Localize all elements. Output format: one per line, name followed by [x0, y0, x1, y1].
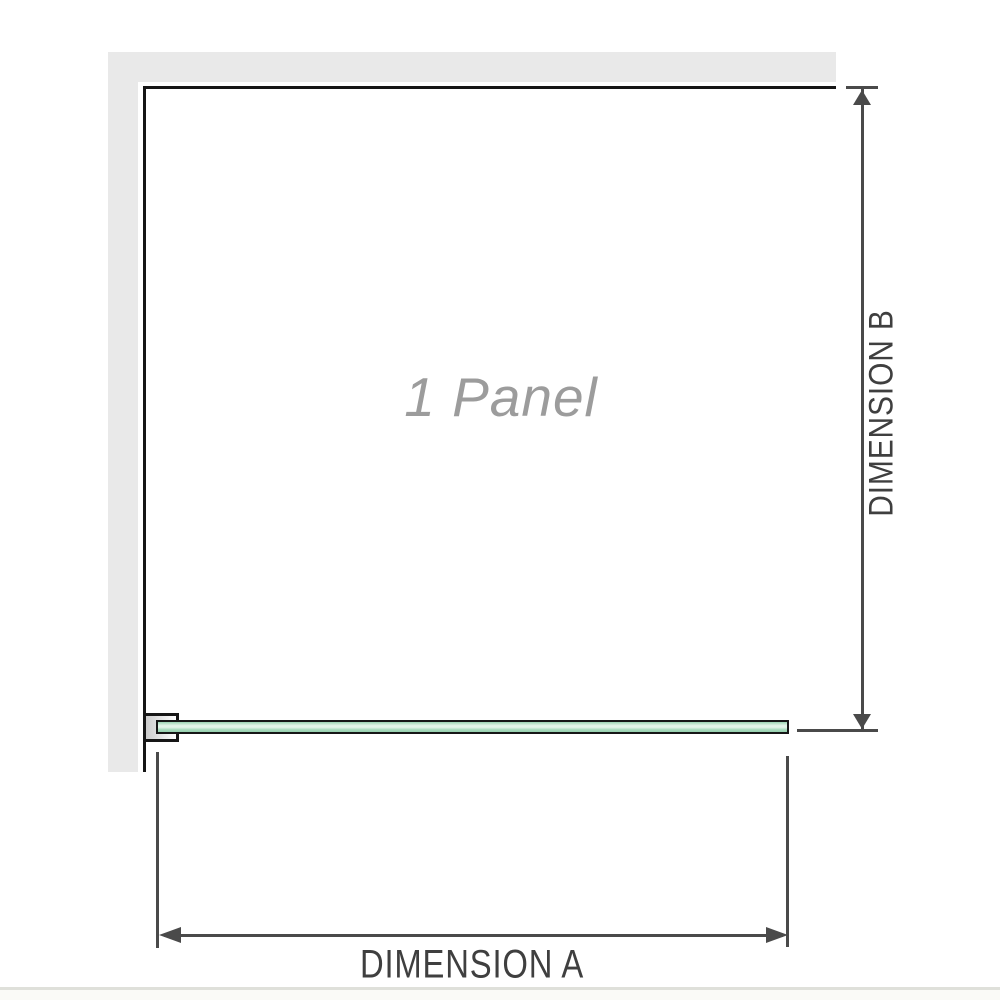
- arrow-left-icon: [159, 927, 181, 943]
- glass-panel: [156, 720, 789, 734]
- dimension-a-label: DIMENSION A: [360, 943, 584, 988]
- arrow-up-icon: [853, 90, 871, 105]
- dimension-b-label: DIMENSION B: [863, 309, 902, 517]
- dimension-b-top-tick: [846, 86, 878, 89]
- dimension-a-left-extension: [156, 752, 159, 948]
- arrow-right-icon: [766, 927, 788, 943]
- panel-count-caption: 1 Panel: [404, 365, 598, 429]
- wall-top-strip: [108, 52, 836, 82]
- wall-left-strip: [108, 52, 138, 772]
- bottom-edge-band: [0, 990, 1000, 1000]
- dimension-a-line: [164, 934, 783, 937]
- enclosure-outline-top: [143, 86, 836, 89]
- dimension-a-right-extension: [786, 756, 789, 947]
- panel-dimension-diagram: DIMENSION B DIMENSION A 1 Panel: [0, 0, 1000, 1000]
- dimension-b-bottom-tick: [797, 729, 878, 732]
- arrow-down-icon: [853, 714, 871, 729]
- enclosure-outline-left: [143, 86, 146, 772]
